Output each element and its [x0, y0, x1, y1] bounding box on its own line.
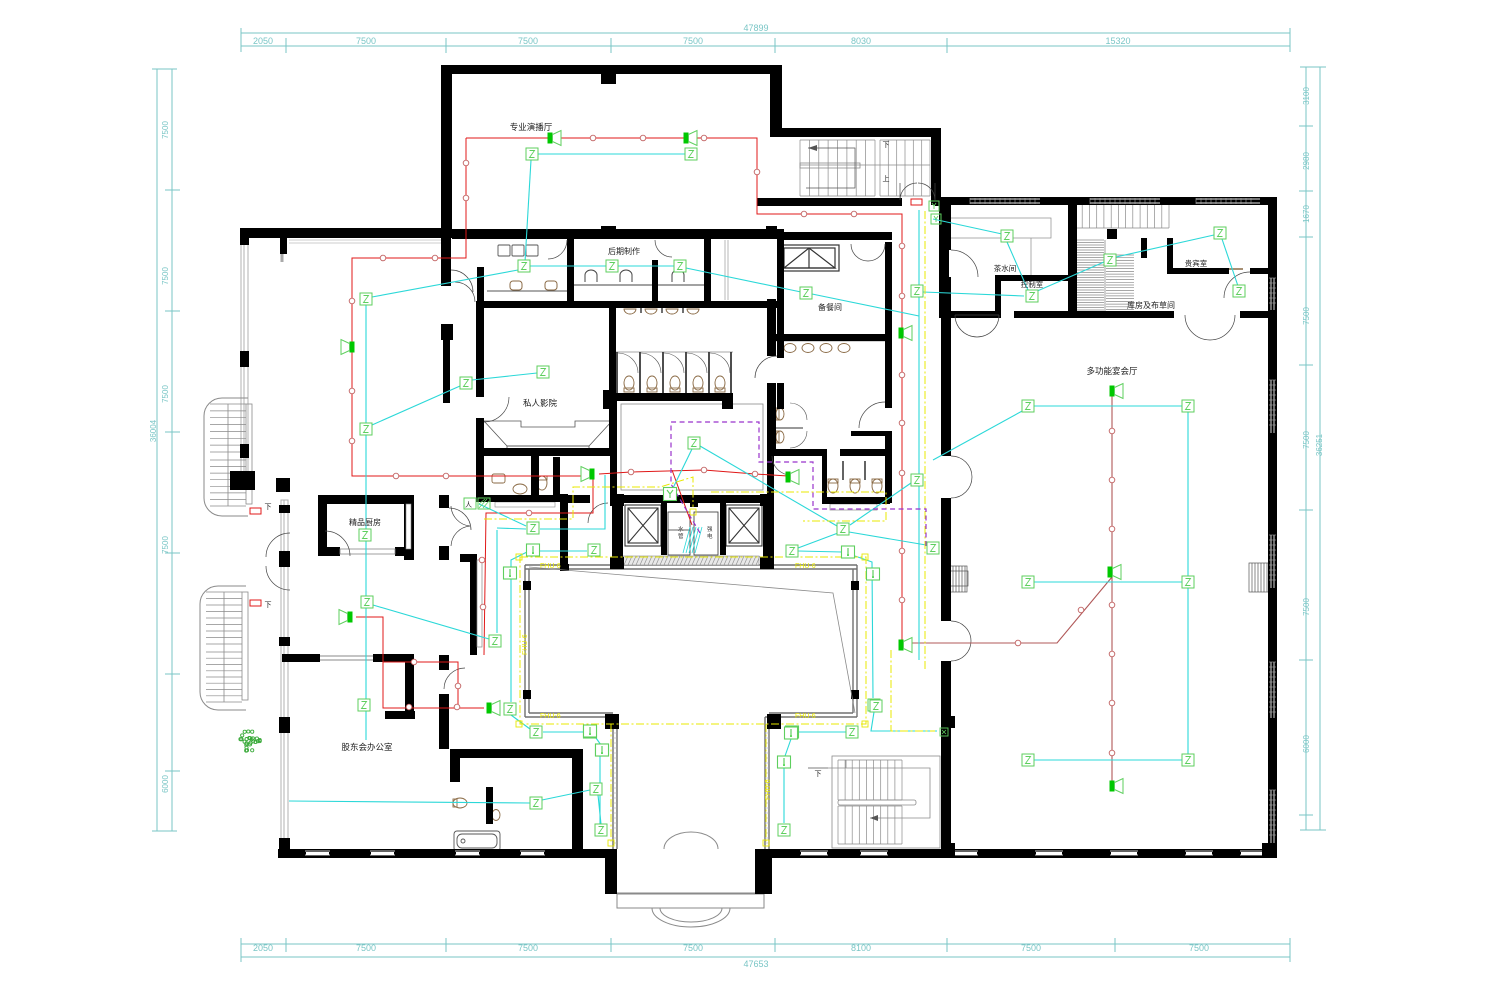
svg-text:库房及布草间: 库房及布草间: [1127, 300, 1175, 310]
svg-text:3100: 3100: [1302, 87, 1311, 105]
svg-text:下: 下: [265, 601, 272, 609]
svg-text:茶水间: 茶水间: [994, 263, 1017, 273]
svg-text:下: 下: [815, 770, 822, 778]
svg-text:2980: 2980: [1302, 152, 1311, 170]
svg-text:强: 强: [707, 526, 713, 533]
svg-text:8100: 8100: [851, 943, 871, 953]
svg-text:贵宾室: 贵宾室: [1185, 258, 1208, 268]
svg-text:2050: 2050: [253, 943, 273, 953]
svg-text:下: 下: [265, 503, 272, 511]
svg-text:电: 电: [707, 532, 713, 540]
svg-text:股东会办公室: 股东会办公室: [341, 742, 393, 752]
svg-text:人: 人: [465, 501, 472, 509]
svg-text:私人影院: 私人影院: [523, 398, 558, 408]
svg-text:36251: 36251: [1315, 433, 1324, 456]
svg-text:7500: 7500: [356, 36, 376, 46]
svg-text:36004: 36004: [149, 419, 158, 442]
svg-text:水: 水: [678, 525, 684, 533]
svg-text:2050: 2050: [253, 36, 273, 46]
svg-text:FHU-6: FHU-6: [540, 713, 561, 720]
svg-text:精品厨房: 精品厨房: [349, 517, 381, 527]
svg-text:7500: 7500: [683, 943, 703, 953]
svg-text:47653: 47653: [743, 959, 768, 969]
svg-text:上: 上: [883, 174, 890, 183]
svg-text:多功能宴会厅: 多功能宴会厅: [1086, 366, 1138, 376]
svg-text:FHU-6: FHU-6: [795, 713, 816, 720]
svg-text:47899: 47899: [743, 23, 768, 33]
svg-text:7500: 7500: [161, 267, 170, 285]
svg-text:7500: 7500: [1189, 943, 1209, 953]
svg-text:7500: 7500: [1302, 307, 1311, 325]
svg-text:备餐间: 备餐间: [818, 302, 842, 312]
svg-text:7500: 7500: [356, 943, 376, 953]
svg-text:管: 管: [678, 532, 684, 540]
svg-text:1670: 1670: [1302, 205, 1311, 223]
svg-text:FHU-6: FHU-6: [522, 634, 529, 655]
svg-text:7500: 7500: [1302, 598, 1311, 616]
svg-text:FHU-6: FHU-6: [540, 563, 561, 570]
svg-text:下: 下: [883, 141, 890, 149]
svg-text:6000: 6000: [1302, 735, 1311, 753]
svg-text:6000: 6000: [161, 775, 170, 793]
svg-text:7500: 7500: [161, 121, 170, 139]
svg-text:7500: 7500: [161, 536, 170, 554]
svg-text:7500: 7500: [683, 36, 703, 46]
svg-text:15320: 15320: [1105, 36, 1130, 46]
svg-text:FHU-6: FHU-6: [765, 779, 772, 800]
svg-text:7500: 7500: [1021, 943, 1041, 953]
svg-text:7500: 7500: [161, 385, 170, 403]
svg-text:7500: 7500: [518, 36, 538, 46]
svg-text:专业演播厅: 专业演播厅: [510, 122, 553, 132]
svg-text:控制室: 控制室: [1021, 279, 1044, 289]
svg-text:FHU-6: FHU-6: [795, 563, 816, 570]
svg-text:7500: 7500: [1302, 431, 1311, 449]
svg-text:8030: 8030: [851, 36, 871, 46]
svg-text:7500: 7500: [518, 943, 538, 953]
svg-text:后期制作: 后期制作: [608, 246, 640, 256]
